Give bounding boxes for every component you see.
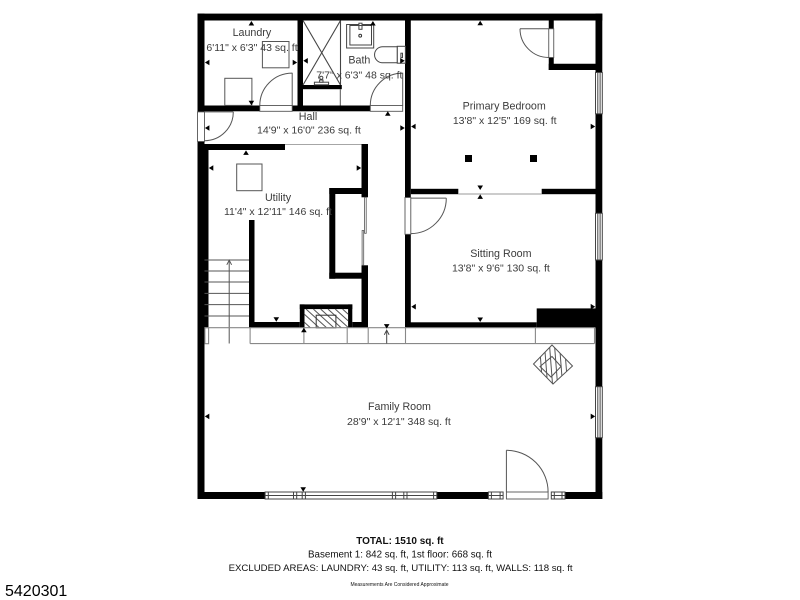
svg-text:7'7" x 6'3" 48 sq. ft: 7'7" x 6'3" 48 sq. ft (316, 70, 402, 82)
svg-text:Primary Bedroom: Primary Bedroom (463, 100, 546, 112)
svg-text:Basement 1: 842 sq. ft, 1st fl: Basement 1: 842 sq. ft, 1st floor: 668 s… (308, 550, 492, 561)
svg-text:Laundry: Laundry (233, 27, 272, 39)
svg-text:Sitting Room: Sitting Room (470, 248, 531, 260)
svg-text:11'4" x 12'11" 146 sq. ft: 11'4" x 12'11" 146 sq. ft (224, 206, 332, 218)
svg-text:5420301: 5420301 (5, 583, 67, 600)
svg-text:EXCLUDED AREAS: LAUNDRY: 43 sq: EXCLUDED AREAS: LAUNDRY: 43 sq. ft, UTIL… (229, 563, 573, 574)
svg-text:13'8" x 9'6" 130 sq. ft: 13'8" x 9'6" 130 sq. ft (452, 262, 550, 274)
svg-text:13'8" x 12'5" 169 sq. ft: 13'8" x 12'5" 169 sq. ft (453, 115, 557, 127)
svg-text:Bath: Bath (348, 55, 370, 67)
svg-text:28'9" x 12'1" 348 sq. ft: 28'9" x 12'1" 348 sq. ft (347, 416, 451, 428)
svg-text:Measurements Are Considered Ap: Measurements Are Considered Approximate (350, 582, 448, 588)
svg-text:6'11" x 6'3" 43 sq. ft: 6'11" x 6'3" 43 sq. ft (206, 42, 297, 54)
svg-text:Hall: Hall (299, 111, 317, 123)
svg-text:14'9" x 16'0" 236 sq. ft: 14'9" x 16'0" 236 sq. ft (257, 125, 361, 137)
svg-text:TOTAL: 1510 sq. ft: TOTAL: 1510 sq. ft (356, 536, 444, 547)
svg-text:Utility: Utility (265, 192, 292, 204)
svg-text:Family Room: Family Room (368, 401, 431, 413)
